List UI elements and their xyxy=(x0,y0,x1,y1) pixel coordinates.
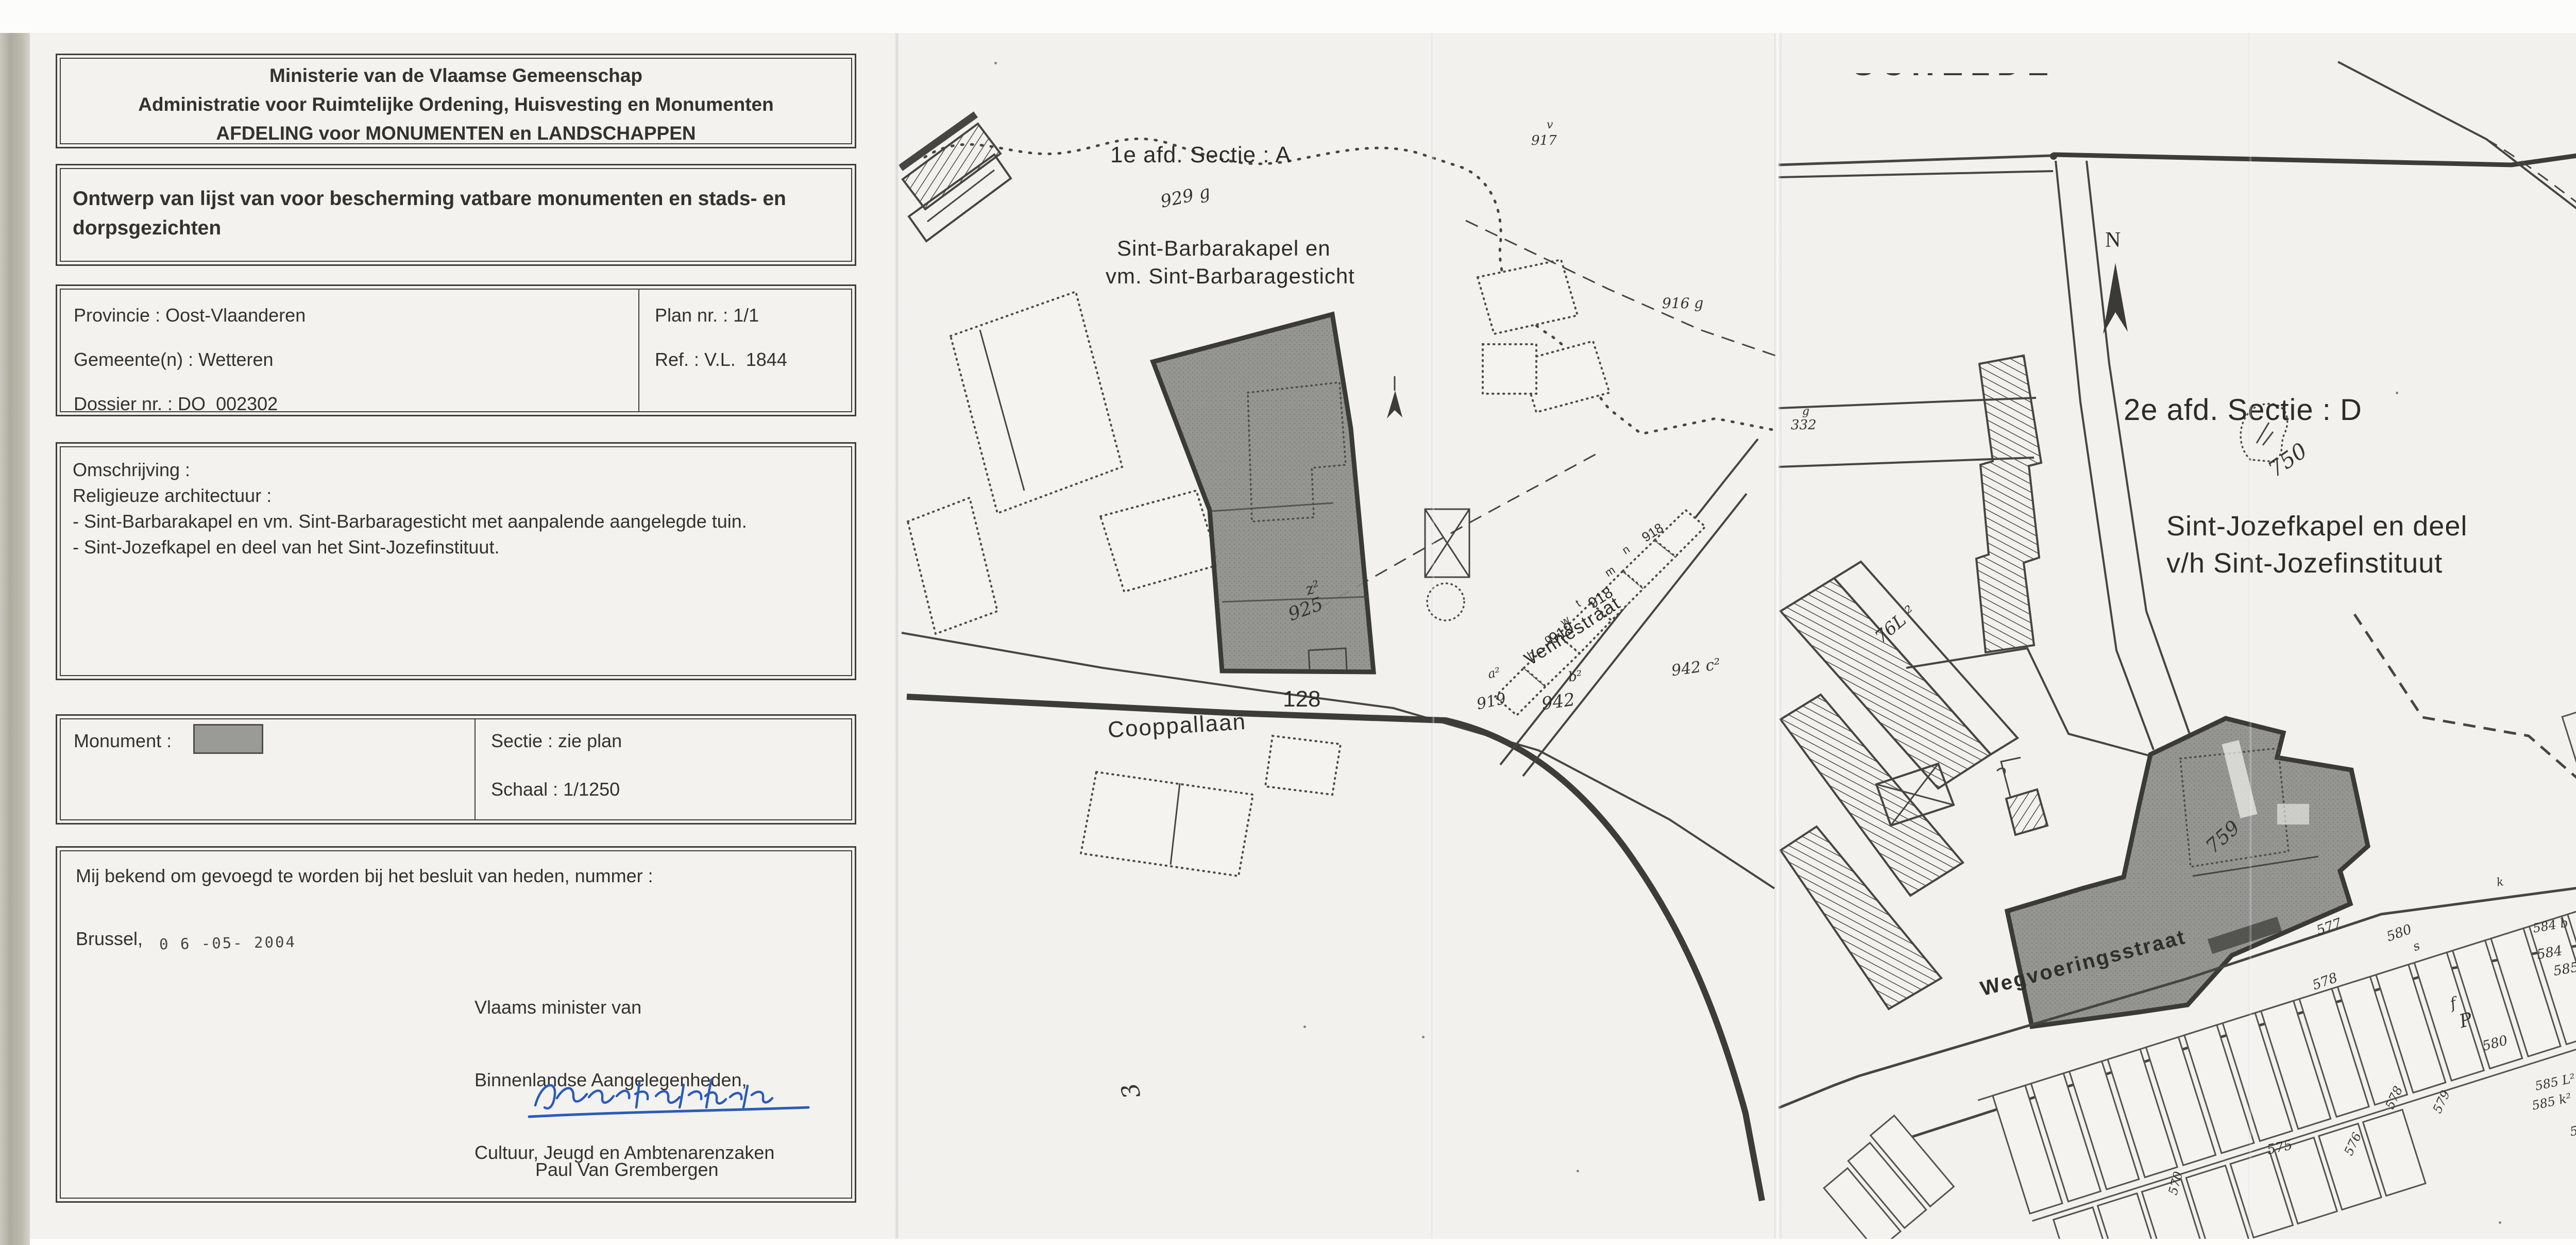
ministry-line: Ministerie van de Vlaamse Gemeenschap xyxy=(57,61,855,90)
signature-box: Mij bekend om gevoegd te worden bij het … xyxy=(56,846,856,1203)
legend-box-divider xyxy=(474,719,476,820)
map-d-north-arrow-icon xyxy=(2103,263,2128,334)
river-label-schelde: SCHELDE xyxy=(1853,73,2141,108)
subject-box: Ontwerp van lijst van voor bescherming v… xyxy=(56,164,856,266)
administration-line: Administratie voor Ruimtelijke Ordening,… xyxy=(57,90,855,119)
river-label-text: SCHELDE xyxy=(1853,73,2141,83)
ref-field: Ref. : V.L. 1844 xyxy=(655,347,787,373)
info-box: Provincie : Oost-Vlaanderen Gemeente(n) … xyxy=(56,284,856,416)
description-subtitle: Religieuze architectuur : xyxy=(73,483,272,509)
monument-color-swatch xyxy=(193,724,263,754)
place-label: Brussel, xyxy=(76,926,143,952)
sectie-field: Sectie : zie plan xyxy=(491,728,622,754)
minister-signature xyxy=(526,1067,815,1129)
signer-name: Paul Van Grembergen xyxy=(535,1157,719,1183)
scan-speck xyxy=(1422,1036,1425,1038)
map-a-monument-area xyxy=(1153,314,1374,672)
scan-speck xyxy=(1303,1025,1306,1028)
description-item: - Sint-Jozefkapel en deel van het Sint-J… xyxy=(73,534,835,560)
description-title: Omschrijving : xyxy=(73,457,190,483)
subject-text: Ontwerp van lijst van voor bescherming v… xyxy=(57,165,855,243)
plan-nr-field: Plan nr. : 1/1 xyxy=(655,302,759,328)
decree-line: Mij bekend om gevoegd te worden bij het … xyxy=(76,863,838,889)
description-item: - Sint-Barbarakapel en vm. Sint-Barbarag… xyxy=(73,509,835,534)
info-box-divider xyxy=(638,289,639,412)
scanned-document: Ministerie van de Vlaamse Gemeenschap Ad… xyxy=(0,0,2576,1245)
map-a-north-arrow-icon xyxy=(1387,391,1402,418)
map-d-geometry xyxy=(1778,62,2576,1245)
municipality-field: Gemeente(n) : Wetteren xyxy=(74,347,274,373)
description-box: Omschrijving : Religieuze architectuur :… xyxy=(56,442,856,680)
province-field: Provincie : Oost-Vlaanderen xyxy=(74,302,306,328)
schaal-field: Schaal : 1/1250 xyxy=(491,777,620,802)
dossier-field: Dossier nr. : DO 002302 xyxy=(74,391,278,417)
scan-speck xyxy=(994,62,997,64)
date-stamp: 0 6 -05- 2004 xyxy=(159,929,297,957)
map-a-geometry xyxy=(901,114,1775,1201)
scan-speck xyxy=(1577,1170,1579,1172)
monument-label: Monument : xyxy=(74,728,172,754)
division-line: AFDELING voor MONUMENTEN en LANDSCHAPPEN xyxy=(57,119,855,148)
minister-line: Vlaams minister van xyxy=(474,995,774,1019)
scan-speck xyxy=(2396,392,2398,394)
map-d-monument-area xyxy=(2007,718,2368,1027)
scan-speck xyxy=(2499,1221,2501,1224)
header-box: Ministerie van de Vlaamse Gemeenschap Ad… xyxy=(56,54,856,148)
legend-box: Monument : Sectie : zie plan Schaal : 1/… xyxy=(56,714,856,825)
